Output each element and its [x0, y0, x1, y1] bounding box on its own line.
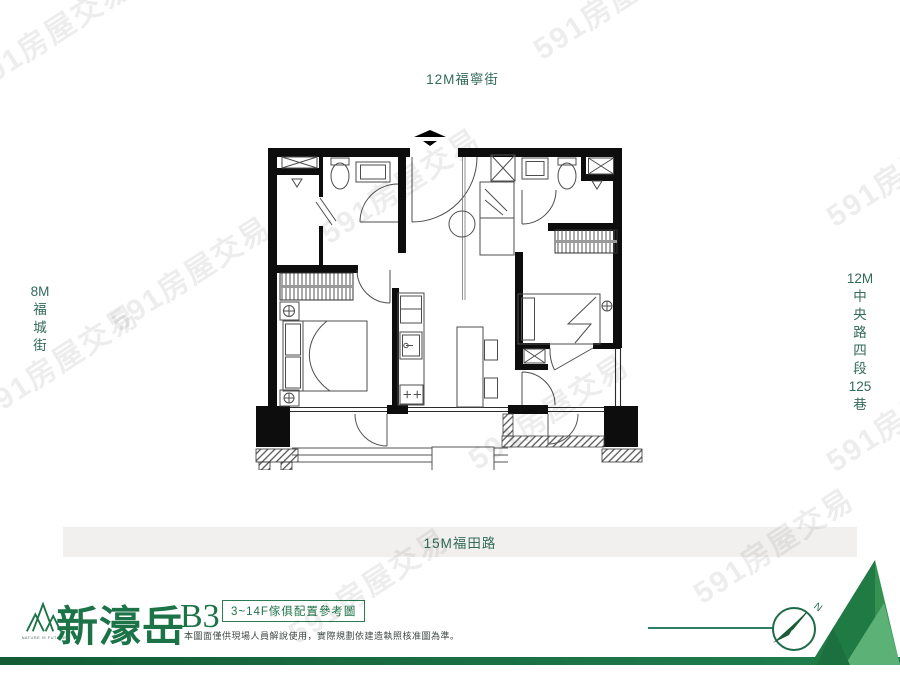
road-band-bottom: 15M福田路 — [63, 527, 857, 557]
windows — [290, 348, 621, 412]
kitchen — [398, 293, 424, 405]
plan-type-badge: 3~14F傢俱配置參考圖 — [222, 600, 365, 622]
street-label-left: 8M 福 城 街 — [20, 283, 60, 355]
disclaimer-text: 本圖面僅供現場人員解說使用，實際規劃依建造執照核准圖為準。 — [184, 629, 460, 642]
balcony — [292, 414, 604, 470]
bathroom-right — [522, 158, 614, 224]
compass-icon: N — [756, 597, 832, 661]
dining-table — [457, 327, 498, 407]
closet-right — [555, 230, 617, 253]
entry-arrow-icon — [414, 130, 446, 137]
closet-left — [280, 273, 353, 300]
street-label-top: 12M福寧街 — [400, 68, 525, 88]
project-name: 新濠岳 — [56, 593, 185, 654]
floorplan-image: 15M福田路 12M福寧街 8M 福 城 街 12M 中 央 路 四 段 125… — [0, 0, 900, 695]
round-table — [449, 211, 475, 237]
watermark: 591房屋交易 — [523, 0, 701, 68]
street-label-bottom: 15M福田路 — [424, 532, 497, 552]
watermark: 591房屋交易 — [0, 0, 138, 100]
watermark: 591房屋交易 — [816, 98, 900, 235]
floor-plan — [250, 120, 650, 470]
street-label-right: 12M 中 央 路 四 段 125 巷 — [840, 270, 880, 414]
compass-n-label: N — [811, 601, 823, 614]
bathroom-left — [282, 157, 398, 225]
bedroom-2 — [518, 294, 612, 405]
